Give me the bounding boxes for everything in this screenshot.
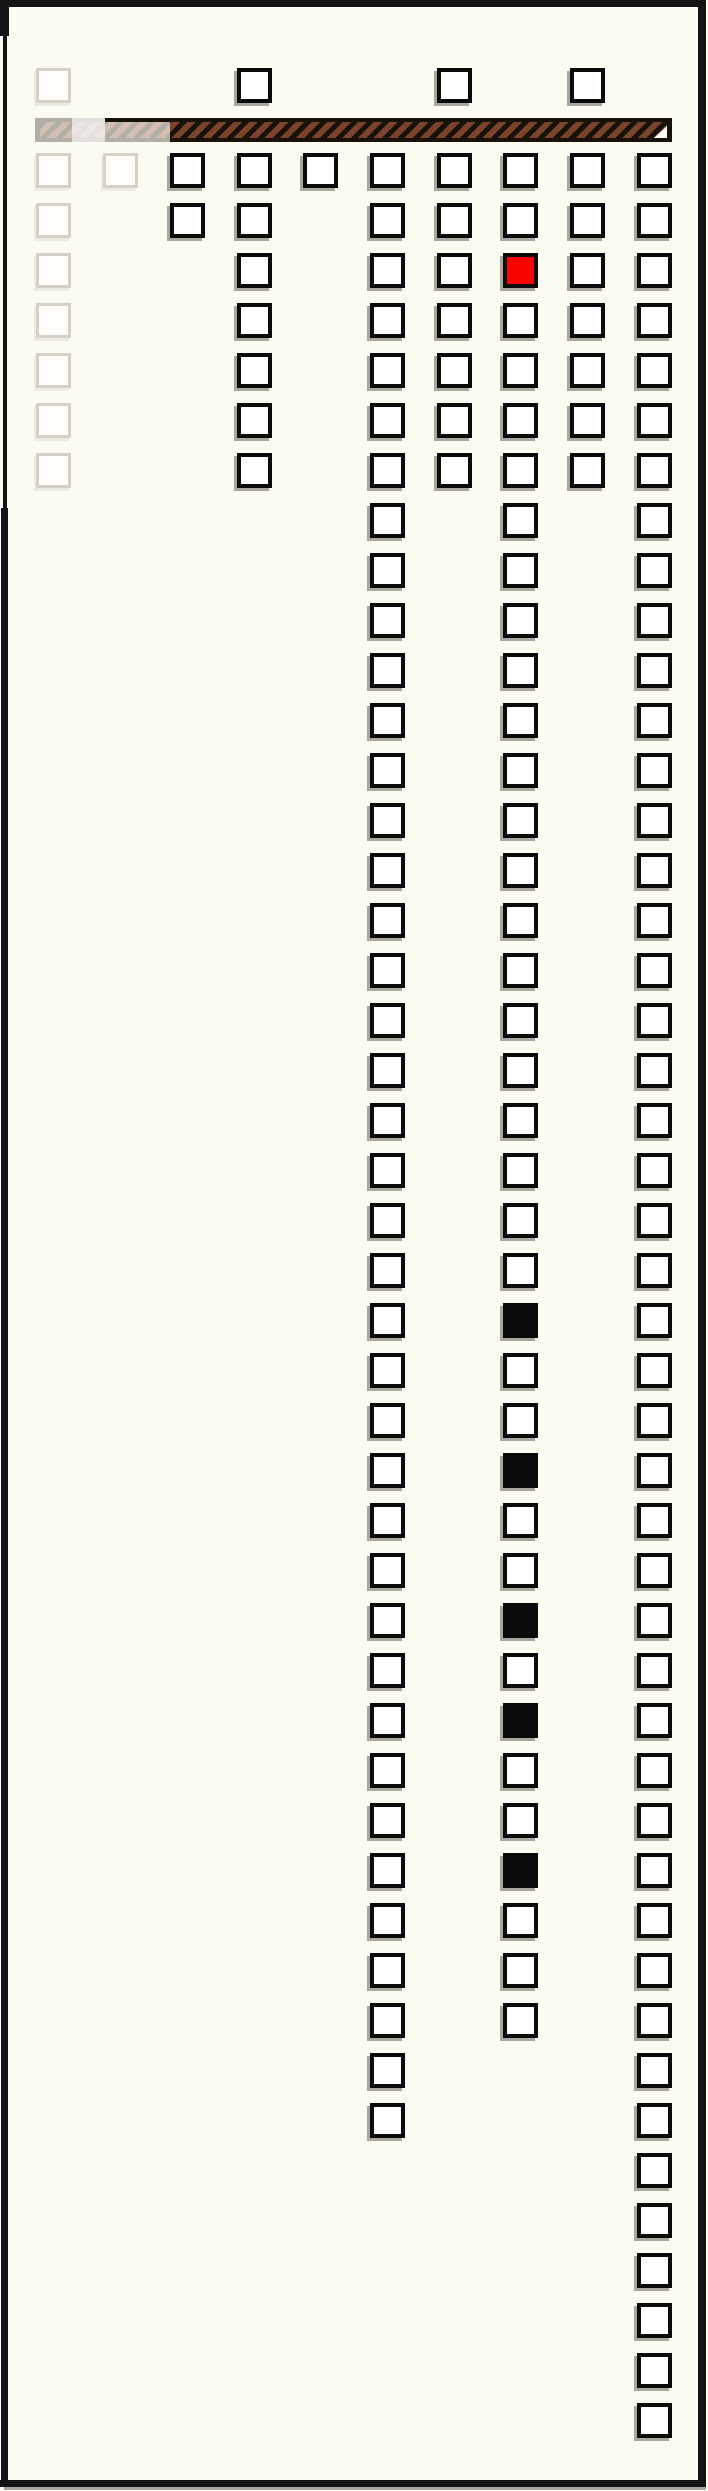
checkbox-cell[interactable] [237,203,272,238]
checkbox-cell[interactable] [370,1053,405,1088]
checkbox-cell[interactable] [437,68,472,103]
checkbox-cell[interactable] [637,403,672,438]
checkbox-cell[interactable] [503,503,538,538]
checkbox-cell[interactable] [370,953,405,988]
checkbox-cell[interactable] [637,1253,672,1288]
checkbox-cell[interactable] [637,1353,672,1388]
checkbox-cell[interactable] [437,153,472,188]
progress-bar-faded-overlay-right [105,122,170,143]
checkbox-cell[interactable] [370,1353,405,1388]
progress-bar-faded-overlay-bright [72,117,105,143]
checkbox-cell[interactable] [503,353,538,388]
checkbox-cell[interactable] [637,603,672,638]
checkbox-cell-disabled [36,68,71,103]
checkbox-cell[interactable] [370,1953,405,1988]
checkbox-cell[interactable] [503,953,538,988]
checkbox-cell[interactable] [503,203,538,238]
checkbox-cell[interactable] [503,1553,538,1588]
checkbox-cell[interactable] [237,303,272,338]
checkbox-cell[interactable] [437,403,472,438]
checkbox-cell[interactable] [437,253,472,288]
checkbox-cell[interactable] [503,1953,538,1988]
checkbox-cell[interactable] [637,1703,672,1738]
checkbox-cell[interactable] [570,353,605,388]
checkbox-cell[interactable] [637,1803,672,1838]
checkbox-cell-black[interactable] [503,1853,538,1888]
checkbox-cell[interactable] [503,1003,538,1038]
frame-border-bottom [0,2480,706,2487]
checkbox-cell[interactable] [503,1203,538,1238]
checkbox-cell[interactable] [370,753,405,788]
checkbox-cell[interactable] [637,1203,672,1238]
checkbox-cell[interactable] [637,2153,672,2188]
checkbox-cell[interactable] [437,203,472,238]
checkbox-cell[interactable] [503,403,538,438]
checkbox-cell[interactable] [237,453,272,488]
checkbox-cell[interactable] [637,1153,672,1188]
checkbox-cell[interactable] [570,453,605,488]
checkbox-cell[interactable] [503,1053,538,1088]
checkbox-cell[interactable] [503,853,538,888]
checkbox-cell[interactable] [170,153,205,188]
checkbox-cell-disabled [36,403,71,438]
progress-tip-triangle-icon [654,126,667,138]
checkbox-cell[interactable] [370,1103,405,1138]
checkbox-cell[interactable] [637,1903,672,1938]
checkbox-cell[interactable] [370,853,405,888]
checkbox-cell[interactable] [503,903,538,938]
checkbox-cell[interactable] [570,403,605,438]
frame-border-right [698,0,706,2487]
checkbox-cell[interactable] [503,1503,538,1538]
checkbox-cell[interactable] [637,2053,672,2088]
checkbox-cell[interactable] [370,653,405,688]
checkbox-cell-black[interactable] [503,1303,538,1338]
checkbox-cell[interactable] [503,1803,538,1838]
checkbox-cell[interactable] [437,453,472,488]
checkbox-cell[interactable] [370,1703,405,1738]
checkbox-cell[interactable] [637,253,672,288]
frame-bottom-shadow [4,2487,706,2490]
checkbox-cell[interactable] [503,703,538,738]
checkbox-cell[interactable] [370,353,405,388]
checkbox-cell[interactable] [637,1403,672,1438]
checkbox-cell[interactable] [503,1403,538,1438]
checkbox-cell[interactable] [637,2353,672,2388]
checkbox-cell[interactable] [370,1803,405,1838]
checkbox-cell[interactable] [370,1603,405,1638]
checkbox-cell[interactable] [503,753,538,788]
checkbox-cell[interactable] [170,203,205,238]
checkbox-cell-black[interactable] [503,1603,538,1638]
checkbox-cell[interactable] [370,403,405,438]
checkbox-cell[interactable] [237,253,272,288]
checkbox-cell[interactable] [370,1553,405,1588]
checkbox-cell[interactable] [570,253,605,288]
checkbox-cell[interactable] [503,1153,538,1188]
checkbox-cell[interactable] [637,753,672,788]
frame-border-top [0,0,706,7]
checkbox-cell[interactable] [370,803,405,838]
checkbox-cell[interactable] [637,553,672,588]
checkbox-cell[interactable] [570,303,605,338]
checkbox-cell[interactable] [503,1353,538,1388]
checkbox-cell[interactable] [637,1103,672,1138]
checkbox-cell[interactable] [570,153,605,188]
checkbox-cell[interactable] [437,303,472,338]
checkbox-cell-disabled [36,453,71,488]
checkbox-cell[interactable] [370,1303,405,1338]
checkbox-cell[interactable] [637,503,672,538]
checkbox-cell[interactable] [570,68,605,103]
frame-border-left-lower [1,508,8,2487]
checkbox-cell[interactable] [570,203,605,238]
checkbox-cell[interactable] [370,1203,405,1238]
checkbox-cell[interactable] [637,153,672,188]
checkbox-cell[interactable] [237,153,272,188]
checkbox-cell[interactable] [637,2303,672,2338]
checkbox-cell[interactable] [503,1653,538,1688]
checkbox-cell[interactable] [503,803,538,838]
checkbox-cell[interactable] [503,653,538,688]
checkbox-cell[interactable] [503,2003,538,2038]
checkbox-cell[interactable] [637,803,672,838]
checkbox-cell[interactable] [503,303,538,338]
checkbox-cell[interactable] [370,553,405,588]
checkbox-cell-red[interactable] [503,253,538,288]
checkbox-cell[interactable] [637,453,672,488]
checkbox-cell[interactable] [637,2103,672,2138]
checkbox-cell[interactable] [503,453,538,488]
checkbox-cell[interactable] [637,653,672,688]
checkbox-cell[interactable] [503,153,538,188]
checkbox-cell[interactable] [370,603,405,638]
checkbox-cell[interactable] [370,453,405,488]
checkbox-cell[interactable] [637,203,672,238]
checkbox-cell-disabled [36,353,71,388]
checkbox-cell[interactable] [637,1303,672,1338]
checkbox-cell[interactable] [370,2053,405,2088]
checkbox-cell[interactable] [637,1953,672,1988]
checkbox-cell-disabled [36,203,71,238]
checkbox-cell[interactable] [637,1603,672,1638]
checkbox-cell-disabled [36,303,71,338]
checkbox-cell[interactable] [637,853,672,888]
checkbox-cell[interactable] [503,603,538,638]
checkbox-cell[interactable] [370,503,405,538]
checkbox-cell[interactable] [370,203,405,238]
checkbox-cell[interactable] [637,1753,672,1788]
checkbox-cell[interactable] [637,2253,672,2288]
checkbox-cell[interactable] [637,1453,672,1488]
checkbox-cell[interactable] [637,1003,672,1038]
checkbox-cell[interactable] [370,303,405,338]
checkbox-cell-disabled [103,153,138,188]
checkbox-cell-black[interactable] [503,1703,538,1738]
checkbox-cell[interactable] [237,353,272,388]
checkbox-cell[interactable] [637,2003,672,2038]
checkbox-cell[interactable] [370,1253,405,1288]
checkbox-cell[interactable] [637,1553,672,1588]
checkbox-cell[interactable] [370,703,405,738]
checkbox-cell[interactable] [503,1253,538,1288]
checkbox-cell[interactable] [370,1503,405,1538]
checkbox-cell[interactable] [370,1753,405,1788]
frame-border-left-upper [3,7,7,508]
checkbox-cell[interactable] [303,153,338,188]
checkbox-cell[interactable] [503,1103,538,1138]
checkbox-cell[interactable] [637,303,672,338]
checkbox-cell[interactable] [370,253,405,288]
checkbox-cell[interactable] [637,1653,672,1688]
checkbox-cell[interactable] [637,903,672,938]
checkbox-cell[interactable] [637,1853,672,1888]
checkbox-cell[interactable] [237,68,272,103]
checkbox-cell-disabled [36,153,71,188]
checkbox-cell[interactable] [503,1903,538,1938]
checkbox-cell-black[interactable] [503,1453,538,1488]
checkbox-cell[interactable] [637,353,672,388]
checkbox-cell[interactable] [503,1753,538,1788]
checkbox-cell[interactable] [370,1403,405,1438]
checkbox-cell[interactable] [637,2203,672,2238]
checkbox-cell[interactable] [237,403,272,438]
checkbox-cell[interactable] [637,953,672,988]
checkbox-cell[interactable] [370,1453,405,1488]
checkbox-cell[interactable] [370,1153,405,1188]
checkbox-cell[interactable] [370,2003,405,2038]
checkbox-cell[interactable] [370,1903,405,1938]
checkbox-cell[interactable] [370,1653,405,1688]
checkbox-cell[interactable] [437,353,472,388]
checkbox-cell-disabled [36,253,71,288]
checkbox-cell[interactable] [637,1503,672,1538]
checkbox-cell[interactable] [637,703,672,738]
checkbox-cell[interactable] [637,1053,672,1088]
checkbox-cell[interactable] [637,2403,672,2438]
checkbox-cell[interactable] [370,1003,405,1038]
checkbox-cell[interactable] [370,153,405,188]
checkbox-cell[interactable] [503,553,538,588]
checkbox-cell[interactable] [370,903,405,938]
page [0,0,708,2491]
checkbox-cell[interactable] [370,2103,405,2138]
checkbox-cell[interactable] [370,1853,405,1888]
